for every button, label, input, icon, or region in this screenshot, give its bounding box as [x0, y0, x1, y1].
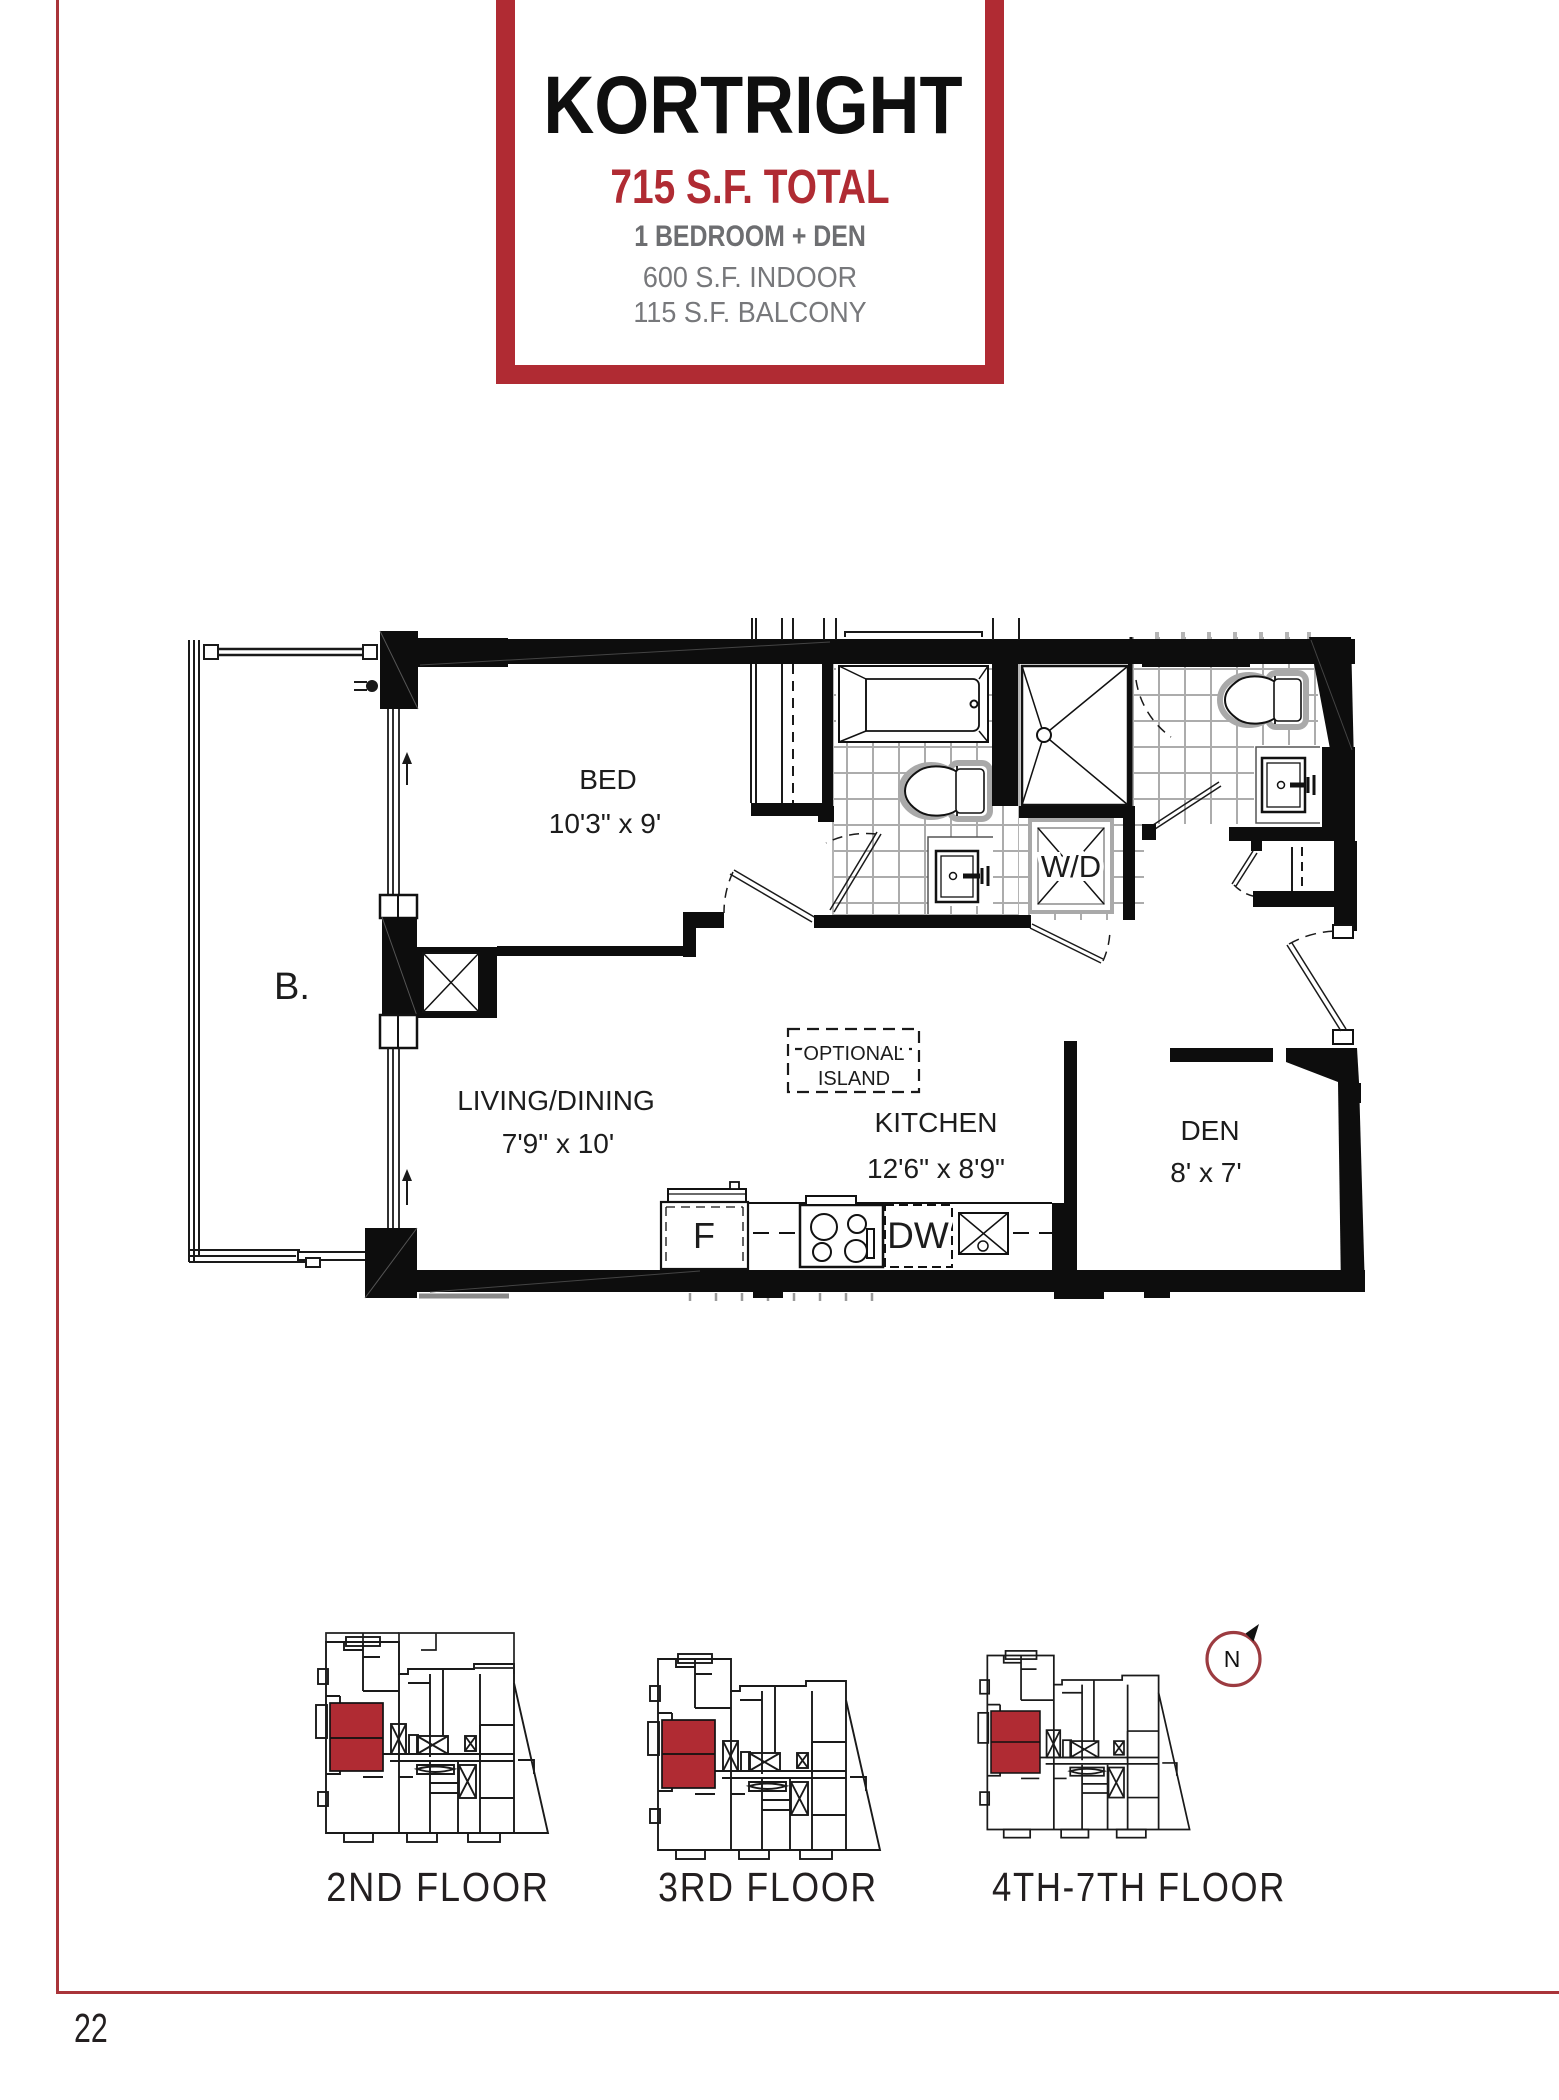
- svg-text:F: F: [693, 1215, 715, 1256]
- svg-text:22: 22: [74, 2004, 108, 2051]
- svg-text:7'9" x 10': 7'9" x 10': [502, 1128, 614, 1159]
- svg-text:OPTIONAL: OPTIONAL: [803, 1043, 904, 1065]
- svg-text:KORTRIGHT: KORTRIGHT: [543, 60, 962, 151]
- svg-text:N: N: [1224, 1646, 1241, 1672]
- svg-text:KITCHEN: KITCHEN: [875, 1107, 998, 1138]
- svg-text:3RD FLOOR: 3RD FLOOR: [658, 1865, 878, 1911]
- svg-text:W/D: W/D: [1041, 849, 1101, 884]
- svg-text:1 BEDROOM + DEN: 1 BEDROOM + DEN: [634, 219, 866, 253]
- svg-text:B.: B.: [274, 966, 310, 1008]
- svg-text:DW: DW: [887, 1215, 949, 1256]
- svg-text:12'6" x 8'9": 12'6" x 8'9": [867, 1153, 1005, 1184]
- svg-text:LIVING/DINING: LIVING/DINING: [457, 1085, 655, 1116]
- svg-text:BED: BED: [579, 764, 637, 795]
- svg-text:ISLAND: ISLAND: [818, 1068, 890, 1090]
- svg-text:115 S.F. BALCONY: 115 S.F. BALCONY: [633, 296, 867, 328]
- svg-text:10'3" x 9': 10'3" x 9': [549, 808, 661, 839]
- svg-text:4TH-7TH FLOOR: 4TH-7TH FLOOR: [992, 1865, 1286, 1910]
- svg-text:600 S.F. INDOOR: 600 S.F. INDOOR: [643, 261, 857, 293]
- svg-text:8' x 7': 8' x 7': [1170, 1157, 1241, 1188]
- svg-text:715 S.F. TOTAL: 715 S.F. TOTAL: [610, 160, 889, 214]
- svg-text:2ND FLOOR: 2ND FLOOR: [326, 1865, 550, 1911]
- svg-text:DEN: DEN: [1180, 1115, 1239, 1146]
